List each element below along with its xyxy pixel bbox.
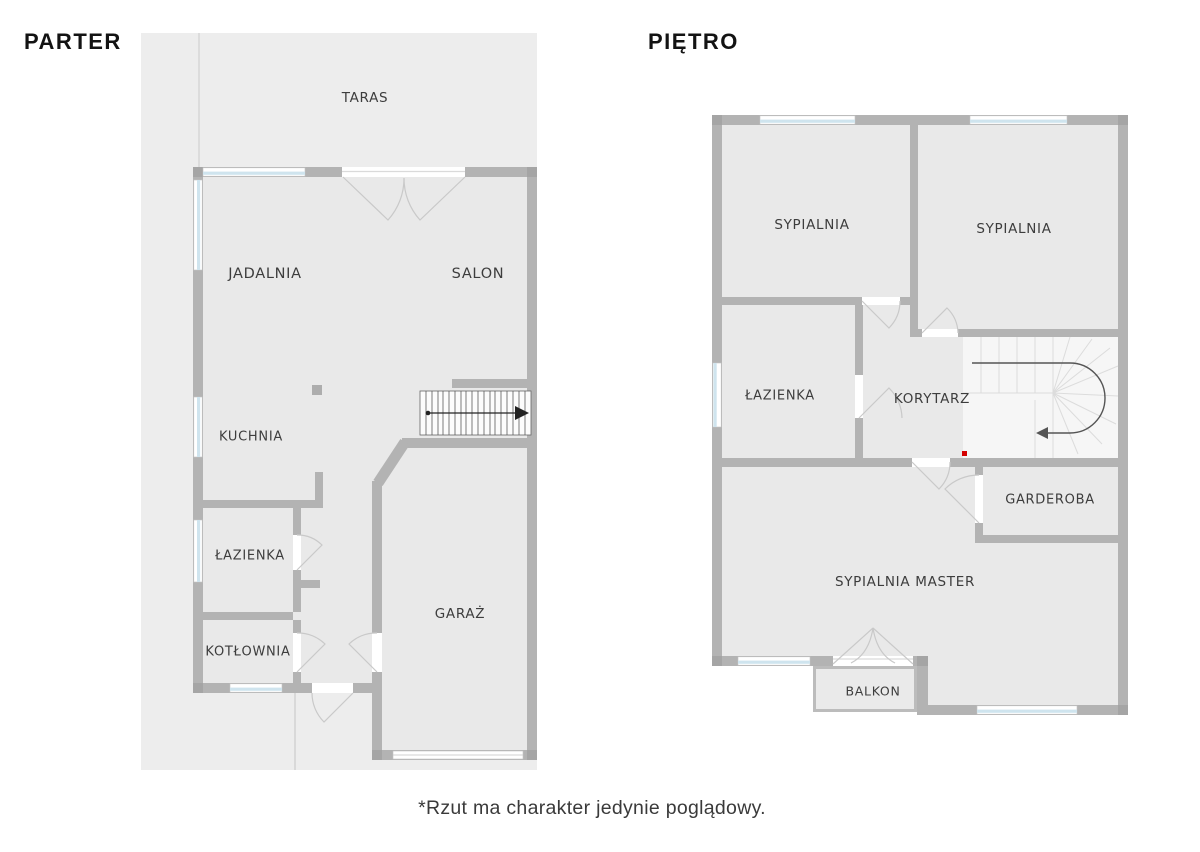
door-opening bbox=[293, 633, 301, 672]
floor-title-parter: PARTER bbox=[24, 29, 122, 55]
floor-title-pietro: PIĘTRO bbox=[648, 29, 739, 55]
structural-column bbox=[312, 385, 322, 395]
door-opening bbox=[372, 633, 382, 672]
parter-plan bbox=[141, 33, 537, 770]
door-opening bbox=[855, 375, 863, 418]
room-label-garderoba: GARDEROBA bbox=[1005, 493, 1095, 508]
window bbox=[194, 520, 202, 582]
stairs-parter bbox=[420, 391, 531, 435]
room-label-korytarz: KORYTARZ bbox=[894, 391, 970, 407]
window bbox=[970, 116, 1067, 124]
room-label-jadalnia: JADALNIA bbox=[228, 266, 302, 282]
floorplan-drawing bbox=[0, 0, 1200, 852]
window bbox=[230, 684, 282, 692]
door-opening bbox=[975, 475, 983, 523]
room-label-kuchnia: KUCHNIA bbox=[219, 430, 283, 445]
door-opening bbox=[862, 297, 900, 305]
garage-door-window bbox=[393, 751, 523, 759]
red-marker-dot bbox=[962, 451, 967, 456]
pietro-plan bbox=[712, 115, 1128, 715]
room-label-garaz: GARAŻ bbox=[435, 606, 486, 622]
parter-interior bbox=[193, 167, 537, 760]
window bbox=[977, 706, 1077, 714]
disclaimer-text: *Rzut ma charakter jedynie poglądowy. bbox=[192, 797, 992, 820]
room-label-sypialnia-2: SYPIALNIA bbox=[976, 221, 1051, 237]
door-opening bbox=[922, 329, 958, 337]
room-label-lazienka-pietro: ŁAZIENKA bbox=[745, 389, 815, 404]
room-label-salon: SALON bbox=[452, 266, 505, 282]
door-opening bbox=[293, 535, 301, 570]
floorplan-canvas: PARTER PIĘTRO TARAS JADALNIA SALON KUCHN… bbox=[0, 0, 1200, 852]
door-opening bbox=[912, 458, 950, 467]
balcony-door-opening bbox=[833, 656, 913, 666]
window bbox=[194, 397, 202, 457]
room-label-lazienka-parter: ŁAZIENKA bbox=[215, 549, 285, 564]
room-label-balkon: BALKON bbox=[846, 684, 901, 699]
entry-door-opening bbox=[312, 683, 353, 693]
window bbox=[760, 116, 855, 124]
window bbox=[194, 180, 202, 270]
room-label-sypialnia-master: SYPIALNIA MASTER bbox=[835, 574, 975, 590]
room-label-sypialnia-1: SYPIALNIA bbox=[774, 217, 849, 233]
window bbox=[203, 168, 305, 176]
window bbox=[738, 657, 810, 665]
room-label-taras: TARAS bbox=[342, 90, 389, 106]
window bbox=[713, 363, 721, 427]
room-label-kotlownia: KOTŁOWNIA bbox=[205, 645, 290, 660]
stairwell-area bbox=[963, 337, 1118, 458]
